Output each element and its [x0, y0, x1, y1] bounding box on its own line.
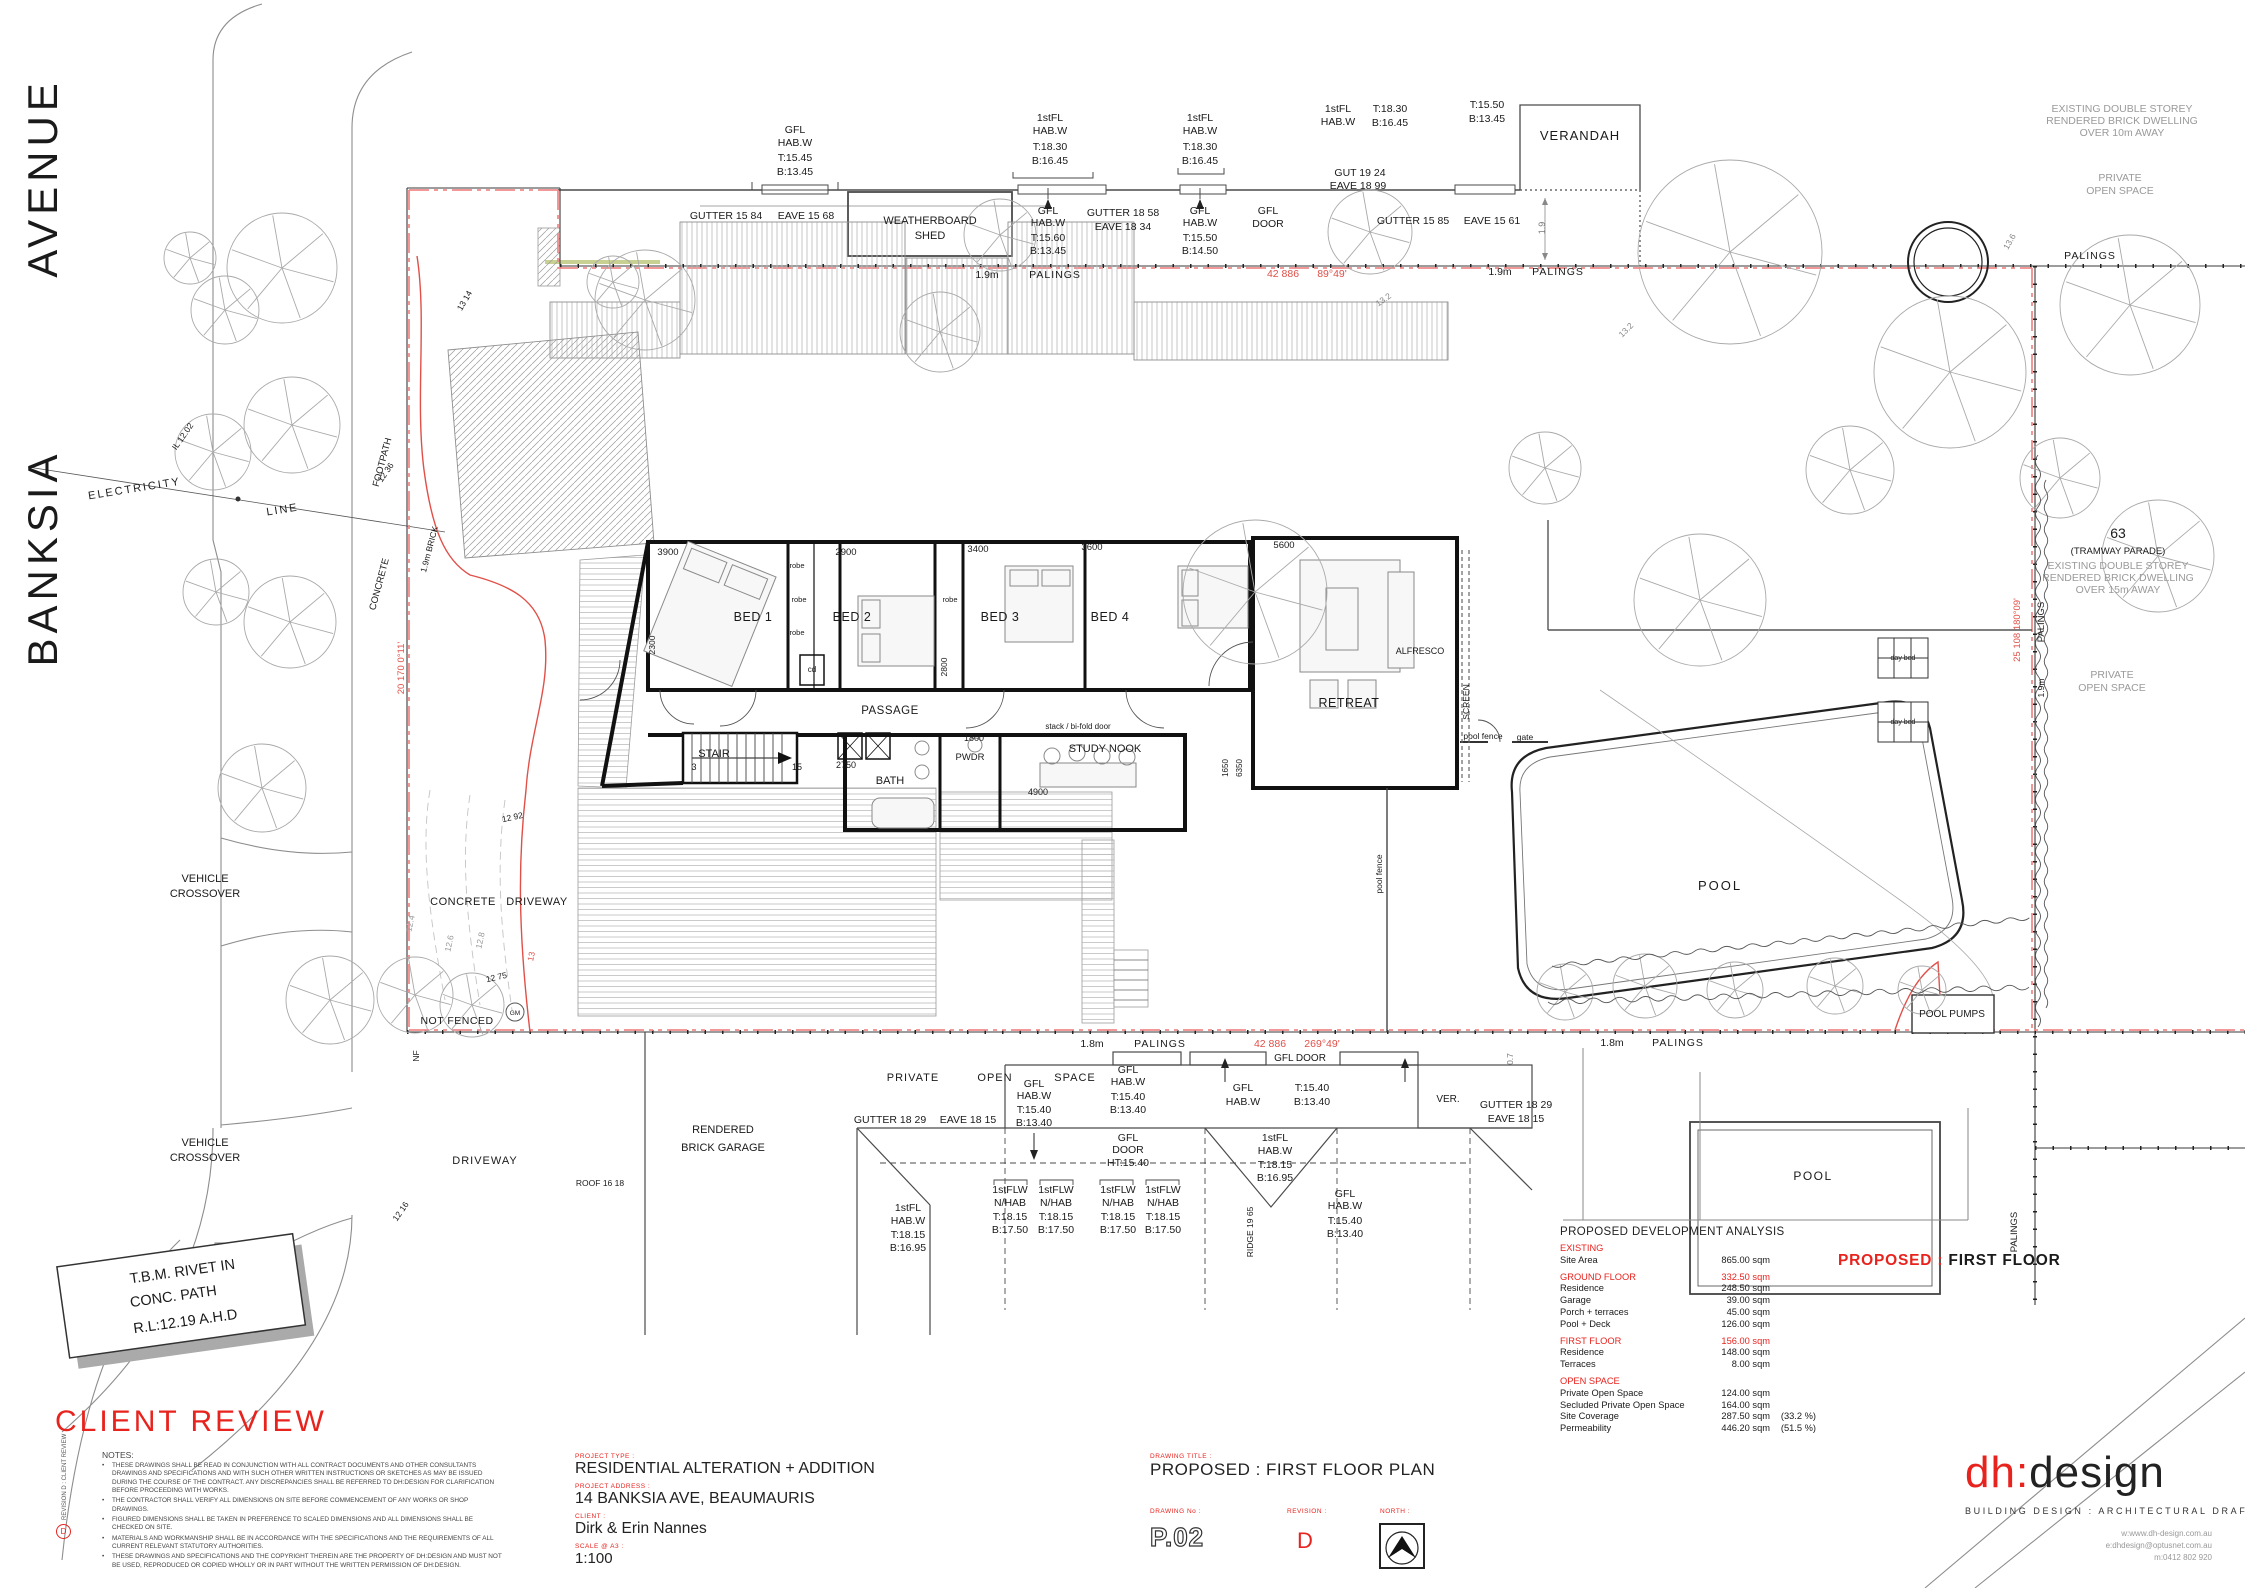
plan-label: OVER 15m AWAY: [2076, 584, 2161, 596]
analysis-row-value: 446.20 sqm: [1698, 1423, 1770, 1433]
tree-canopy: [1806, 426, 1894, 514]
tree-canopy: [218, 744, 306, 832]
plan-label: robe: [789, 561, 804, 570]
plan-label: 2750: [836, 760, 856, 770]
plan-label: 12.4: [403, 914, 416, 933]
plan-label: N/HAB: [1102, 1197, 1134, 1209]
analysis-row-value: 287.50 sqm: [1698, 1411, 1770, 1421]
plan-label: ROOF 16 18: [576, 1178, 624, 1188]
plan-label: B:17.50: [1100, 1224, 1136, 1236]
plan-label: T:15.40: [1111, 1091, 1146, 1103]
analysis-row-label: Site Area: [1560, 1255, 1698, 1265]
plan-label: 20 170 0°11': [396, 642, 407, 695]
plan-label: day bed: [1891, 655, 1916, 662]
plan-label: 13.2: [1616, 320, 1635, 339]
plan-label: day bed: [1891, 719, 1916, 726]
analysis-row-value: 865.00 sqm: [1698, 1255, 1770, 1265]
client-value: Dirk & Erin Nannes: [575, 1520, 875, 1538]
tree-canopy: [244, 576, 336, 668]
plan-label: GFL: [1118, 1064, 1139, 1076]
plan-label: T:15.45: [778, 152, 813, 164]
analysis-row: Site Area865.00 sqm: [1560, 1255, 1816, 1267]
tree-canopy: [164, 232, 216, 284]
plan-label: HAB.W: [778, 137, 813, 149]
analysis-row-label: Garage: [1560, 1295, 1698, 1305]
site-plan-drawing: AVENUEBANKSIAELECTRICITYLINEIL 12.0212 3…: [0, 0, 2245, 1588]
neighbour-pool-label: POOL: [1793, 1169, 1832, 1183]
plan-label: B:16.95: [1257, 1172, 1293, 1184]
tree-canopy: [1613, 954, 1677, 1018]
analysis-row: EXISTING: [1560, 1243, 1816, 1255]
pool-pumps-label: POOL PUMPS: [1919, 1009, 1985, 1020]
logo-brand-black: design: [2029, 1448, 2165, 1497]
plan-label: HAB.W: [1226, 1096, 1261, 1108]
plan-label: GFL: [1258, 205, 1279, 217]
plan-label: 1stFL: [1037, 112, 1063, 124]
analysis-row-label: Site Coverage: [1560, 1411, 1698, 1421]
analysis-row: Secluded Private Open Space164.00 sqm: [1560, 1400, 1816, 1412]
plan-label: robe: [942, 595, 957, 604]
plan-label: ALFRESCO: [1396, 646, 1445, 656]
plan-label: GUTTER 15 85: [1377, 215, 1450, 227]
tree-canopy: [440, 973, 504, 1037]
plan-label: pool fence: [1374, 854, 1384, 893]
plan-label: OVER 10m AWAY: [2080, 127, 2165, 139]
plan-label: GFL: [1024, 1078, 1045, 1090]
plan-label: FOOTPATH: [371, 436, 395, 488]
plan-label: 89°49': [1317, 268, 1347, 280]
room-retreat: RETREAT: [1319, 696, 1380, 710]
plan-label: SHED: [915, 230, 946, 242]
plan-label: 1.9m: [1488, 266, 1512, 278]
plan-label: T:18.30: [1183, 141, 1218, 153]
plan-label: pool fence: [1463, 731, 1502, 741]
plan-label: 1stFLW: [992, 1184, 1027, 1196]
plan-label: 12.8: [473, 931, 486, 950]
note-item-2: THE CONTRACTOR SHALL VERIFY ALL DIMENSIO…: [102, 1497, 502, 1514]
plan-label: 1.9: [1537, 222, 1547, 235]
scale-label: SCALE @ A3 :: [575, 1543, 875, 1550]
plan-label: GFL: [1118, 1132, 1139, 1144]
tree-canopy: [1328, 190, 1412, 274]
plan-label: GUT 19 24: [1334, 167, 1385, 179]
plan-label: EXISTING DOUBLE STOREY: [2051, 103, 2192, 115]
analysis-row-value: 124.00 sqm: [1698, 1388, 1770, 1398]
analysis-row: Residence148.00 sqm: [1560, 1347, 1816, 1359]
plan-label: EAVE 15 68: [778, 210, 835, 222]
note-item-1: THESE DRAWINGS SHALL BE READ IN CONJUNCT…: [102, 1462, 502, 1495]
plan-label: RENDERED BRICK DWELLING: [2046, 115, 2198, 127]
project-address-value: 14 BANKSIA AVE, BEAUMAURIS: [575, 1490, 875, 1508]
tree-canopy: [1638, 160, 1822, 344]
analysis-row-label: OPEN SPACE: [1560, 1376, 1698, 1386]
logo-contact-block: w:www.dh-design.com.au e:dhdesign@optusn…: [2000, 1528, 2212, 1564]
shrub-layer: [1548, 455, 2048, 1027]
analysis-row-label: Secluded Private Open Space: [1560, 1400, 1698, 1410]
drawing-no-value: P.02: [1150, 1522, 1204, 1553]
plan-label: 6350: [1235, 759, 1244, 777]
tree-canopy: [183, 559, 249, 625]
drawing-no-label: DRAWING No :: [1150, 1508, 1201, 1515]
analysis-row: Site Coverage287.50 sqm(33.2 %): [1560, 1411, 1816, 1423]
plan-label: robe: [789, 628, 804, 637]
drawing-title-block: DRAWING TITLE : PROPOSED : FIRST FLOOR P…: [1150, 1453, 1435, 1480]
analysis-row-label: Terraces: [1560, 1359, 1698, 1369]
analysis-row-value: 45.00 sqm: [1698, 1307, 1770, 1317]
plan-label: T:15.40: [1328, 1215, 1363, 1227]
plan-label: HAB.W: [1183, 217, 1218, 229]
room-bed1: BED 1: [734, 610, 773, 624]
plan-label: 1stFLW: [1145, 1184, 1180, 1196]
plan-label: VEHICLE: [181, 1137, 228, 1149]
furniture: [644, 541, 1414, 828]
plan-label: 0.7: [1505, 1053, 1515, 1065]
plan-label: 1stFL: [1262, 1132, 1288, 1144]
retreat-lounge: [1300, 560, 1414, 708]
plan-label: BRICK GARAGE: [681, 1142, 765, 1154]
bed2: [858, 596, 934, 666]
plan-label: DRIVEWAY: [452, 1155, 517, 1167]
plan-label: HAB.W: [1033, 125, 1068, 137]
plan-label: EAVE 18 34: [1095, 221, 1152, 233]
tree-canopy: [244, 377, 340, 473]
plan-label: 13: [525, 950, 537, 962]
analysis-row-label: Private Open Space: [1560, 1388, 1698, 1398]
neighbour-63-label: 63: [2110, 525, 2126, 541]
notes-heading: NOTES:: [102, 1450, 502, 1460]
plan-label: B:13.40: [1110, 1104, 1146, 1116]
analysis-row: Pool + Deck126.00 sqm: [1560, 1319, 1816, 1331]
plan-label: 1800: [964, 733, 984, 743]
plan-label: CROSSOVER: [170, 888, 240, 900]
revision-label: REVISION :: [1287, 1508, 1327, 1515]
plan-label: DRIVEWAY: [506, 896, 568, 908]
plan-label: 12 92: [501, 810, 524, 824]
analysis-title: PROPOSED DEVELOPMENT ANALYSIS: [1560, 1226, 1816, 1238]
tree-canopy: [1874, 296, 2026, 448]
plan-label: EAVE 18 15: [1488, 1113, 1545, 1125]
porch-roof-hatch: [448, 332, 654, 558]
analysis-row-label: Pool + Deck: [1560, 1319, 1698, 1329]
plan-label: 12 16: [390, 1199, 411, 1222]
plan-label: T:18.15: [1039, 1211, 1074, 1223]
plan-label: GFL DOOR: [1274, 1053, 1326, 1064]
analysis-row-value: 39.00 sqm: [1698, 1295, 1770, 1305]
plan-label: RENDERED: [692, 1124, 754, 1136]
analysis-row: Permeability446.20 sqm(51.5 %): [1560, 1423, 1816, 1435]
plan-label: 1650: [1221, 759, 1230, 777]
bed3: [1005, 566, 1073, 642]
tree-canopy: [286, 956, 374, 1044]
tree-canopy: [1634, 534, 1766, 666]
plan-label: 42 886: [1267, 268, 1299, 280]
plan-label: HAB.W: [1183, 125, 1218, 137]
analysis-row-percent: (33.2 %): [1770, 1411, 1816, 1421]
plan-label: PALINGS: [2009, 1212, 2020, 1252]
tree-canopy: [191, 276, 259, 344]
plan-label: DOOR: [1252, 218, 1284, 230]
plan-label: B:13.40: [1327, 1228, 1363, 1240]
roof-below-hatch: [550, 222, 1448, 360]
client-review-stamp: CLIENT REVIEW: [55, 1405, 327, 1439]
plan-label: B:16.45: [1182, 155, 1218, 167]
plan-label: HT:15.40: [1107, 1157, 1149, 1169]
analysis-row: OPEN SPACE: [1560, 1376, 1816, 1388]
plan-label: HAB.W: [1258, 1145, 1293, 1157]
plan-label: T:18.30: [1033, 141, 1068, 153]
plan-label: PALINGS: [2036, 602, 2047, 642]
room-bed3: BED 3: [981, 610, 1020, 624]
development-analysis-table: PROPOSED DEVELOPMENT ANALYSIS EXISTINGSi…: [1560, 1226, 1816, 1435]
logo-email: e:dhdesign@optusnet.com.au: [2000, 1540, 2212, 1552]
plan-label: T:18.30: [1373, 103, 1408, 115]
plan-label: GUTTER 18 29: [854, 1114, 927, 1126]
plan-label: B:13.45: [1030, 245, 1066, 257]
plan-label: GFL: [1335, 1188, 1356, 1200]
plan-label: T:18.15: [1101, 1211, 1136, 1223]
plan-label: 15: [792, 762, 802, 772]
revision-vertical-note: REVISION D : CLIENT REVIEW: [62, 1434, 68, 1520]
plan-label: 1.8m: [1600, 1037, 1624, 1049]
analysis-row-label: Residence: [1560, 1347, 1698, 1357]
plan-label: PALINGS: [1652, 1037, 1704, 1049]
plan-label: PALINGS: [1134, 1038, 1186, 1050]
plan-label: gate: [1517, 732, 1534, 742]
plan-label: (TRAMWAY PARADE): [2071, 546, 2166, 557]
analysis-row-value: 248.50 sqm: [1698, 1283, 1770, 1293]
analysis-row: Private Open Space124.00 sqm: [1560, 1388, 1816, 1400]
plan-label: EAVE 18 99: [1330, 180, 1387, 192]
plan-label: GM: [510, 1010, 520, 1017]
plan-label: GFL: [1038, 205, 1059, 217]
dhdesign-logo: dh:design: [1965, 1448, 2165, 1498]
plan-label: LINE: [266, 502, 300, 519]
plan-label: GFL: [1233, 1082, 1254, 1094]
plan-label: VEHICLE: [181, 873, 228, 885]
tree-canopy: [227, 213, 337, 323]
shrub-line: [2036, 455, 2041, 1027]
scale-value: 1:100: [575, 1550, 875, 1567]
plan-label: stack / bi-fold door: [1045, 722, 1111, 731]
plan-label: OPEN SPACE: [2086, 185, 2154, 197]
analysis-row-value: 332.50 sqm: [1698, 1272, 1770, 1282]
drawing-title-value: PROPOSED : FIRST FLOOR PLAN: [1150, 1460, 1435, 1480]
plan-label: B:13.45: [777, 166, 813, 178]
day-beds: [1878, 638, 1928, 742]
plan-label: N/HAB: [1040, 1197, 1072, 1209]
plan-label: 1.9m: [975, 269, 999, 281]
analysis-row: Residence248.50 sqm: [1560, 1283, 1816, 1295]
plan-label: B:13.45: [1469, 113, 1505, 125]
tree-canopy: [1807, 958, 1863, 1014]
plan-label: 13.6: [2001, 232, 2018, 252]
pool-label: POOL: [1698, 878, 1742, 893]
plan-label: EAVE 15 61: [1464, 215, 1521, 227]
project-address-label: PROJECT ADDRESS :: [575, 1483, 875, 1490]
north-arrow-icon: [1378, 1522, 1426, 1570]
plan-label: HAB.W: [1328, 1200, 1363, 1212]
plan-label: DOOR: [1112, 1144, 1144, 1156]
analysis-row-value: 126.00 sqm: [1698, 1319, 1770, 1329]
plan-label: 4900: [1028, 787, 1048, 797]
verandah-label: VERANDAH: [1540, 128, 1620, 143]
analysis-row: Terraces8.00 sqm: [1560, 1359, 1816, 1371]
plan-label: 1stFL: [895, 1202, 921, 1214]
analysis-row-percent: (51.5 %): [1770, 1423, 1816, 1433]
plan-label: 2300: [647, 635, 657, 654]
project-type-label: PROJECT TYPE :: [575, 1453, 875, 1460]
plan-label: 269°49': [1304, 1038, 1339, 1050]
analysis-row-value: 8.00 sqm: [1698, 1359, 1770, 1369]
plan-label: 1stFL: [1187, 112, 1213, 124]
analysis-row-label: Porch + terraces: [1560, 1307, 1698, 1317]
plan-label: T:18.15: [891, 1229, 926, 1241]
electricity-line-label: ELECTRICITY: [87, 476, 181, 502]
proposed-tag-black: FIRST FLOOR: [1943, 1252, 2060, 1269]
revision-circle-marker: D: [56, 1524, 71, 1539]
plan-label: PALINGS: [1532, 266, 1584, 278]
tree-canopy: [1537, 964, 1593, 1020]
plan-label: 25 108 180°09': [2012, 598, 2023, 662]
plan-label: 3600: [1081, 542, 1102, 553]
plan-label: OPEN: [977, 1072, 1012, 1084]
plan-label: EAVE 18 15: [940, 1114, 997, 1126]
plan-label: HAB.W: [1017, 1090, 1052, 1102]
plan-label: 42 886: [1254, 1038, 1286, 1050]
plan-label: B:17.50: [1145, 1224, 1181, 1236]
plan-label: GUTTER 18 29: [1480, 1099, 1553, 1111]
plan-label: B:13.40: [1016, 1117, 1052, 1129]
client-label: CLIENT :: [575, 1513, 875, 1520]
plan-label: T:18.15: [993, 1211, 1028, 1223]
plan-label: 3900: [657, 547, 678, 558]
plan-label: T:15.50: [1183, 232, 1218, 244]
plan-label: PALINGS: [1029, 269, 1081, 281]
plan-label: RIDGE 19 65: [1245, 1206, 1255, 1257]
plan-label: IL 12.02: [170, 421, 196, 452]
note-item-4: MATERIALS AND WORKMANSHIP SHALL BE IN AC…: [102, 1535, 502, 1552]
plan-label: NOT FENCED: [420, 1015, 493, 1027]
logo-tagline: BUILDING DESIGN : ARCHITECTURAL DRAFTING: [1965, 1506, 2245, 1516]
plan-label: 5600: [1273, 540, 1294, 551]
plan-label: 1stFLW: [1038, 1184, 1073, 1196]
plan-label: 3: [691, 762, 696, 772]
plan-label: GFL: [1190, 205, 1211, 217]
plan-label: 3400: [967, 544, 988, 555]
analysis-row-label: GROUND FLOOR: [1560, 1272, 1698, 1282]
plan-label: CONCRETE: [367, 557, 391, 611]
plan-label: VER.: [1436, 1094, 1459, 1105]
shed-label: WEATHERBOARD: [883, 215, 976, 227]
plan-label: CROSSOVER: [170, 1152, 240, 1164]
analysis-row-value: 148.00 sqm: [1698, 1347, 1770, 1357]
north-label: NORTH :: [1380, 1508, 1410, 1515]
drawing-title-label: DRAWING TITLE :: [1150, 1453, 1435, 1460]
room-study-nook: STUDY NOOK: [1069, 743, 1142, 755]
plan-label: 1.9m BRICK: [418, 525, 440, 574]
proposed-first-floor-tag: PROPOSED : FIRST FLOOR: [1838, 1252, 2061, 1270]
plan-label: RENDERED BRICK DWELLING: [2042, 572, 2194, 584]
plan-label: T:15.50: [1470, 99, 1505, 111]
plan-label: T:15.60: [1031, 232, 1066, 244]
street-banksia: BANKSIA: [19, 449, 66, 666]
room-bed2: BED 2: [833, 610, 872, 624]
plan-label: PALINGS: [2064, 250, 2116, 262]
plan-label: B:17.50: [992, 1224, 1028, 1236]
plan-label: 1stFL: [1325, 103, 1351, 115]
plan-label: 13 14: [455, 289, 474, 313]
room-pwdr: PWDR: [955, 752, 984, 763]
analysis-row-label: Residence: [1560, 1283, 1698, 1293]
logo-web: w:www.dh-design.com.au: [2000, 1528, 2212, 1540]
plan-label: HAB.W: [1031, 217, 1066, 229]
note-item-3: FIGURED DIMENSIONS SHALL BE TAKEN IN PRE…: [102, 1516, 502, 1533]
pool-outline: [1512, 702, 1964, 999]
plan-label: 1.9m: [2036, 679, 2046, 698]
plan-label: EXISTING DOUBLE STOREY: [2047, 560, 2188, 572]
plan-label: N/HAB: [994, 1197, 1026, 1209]
plan-label: T:15.40: [1017, 1104, 1052, 1116]
plan-label: HAB.W: [891, 1215, 926, 1227]
plan-label: B:16.45: [1032, 155, 1068, 167]
plan-label: B:17.50: [1038, 1224, 1074, 1236]
analysis-row: Porch + terraces45.00 sqm: [1560, 1307, 1816, 1319]
street-avenue: AVENUE: [19, 78, 66, 278]
pool-yard: [1387, 520, 2032, 1033]
plan-label: PRIVATE: [2098, 172, 2141, 184]
analysis-row-label: Permeability: [1560, 1423, 1698, 1433]
tree-canopy: [1509, 432, 1581, 504]
plan-label: T:18.15: [1258, 1159, 1293, 1171]
analysis-row: Garage39.00 sqm: [1560, 1295, 1816, 1307]
plan-label: T:15.40: [1295, 1082, 1330, 1094]
plan-label: GUTTER 18 58: [1087, 207, 1160, 219]
shrub-line: [1552, 918, 2029, 968]
analysis-row-value: 164.00 sqm: [1698, 1400, 1770, 1410]
plan-label: B:13.40: [1294, 1096, 1330, 1108]
floor-plan-sheet: { "sheet": { "stamp": "CLIENT REVIEW", "…: [0, 0, 2245, 1588]
analysis-row-value: 156.00 sqm: [1698, 1336, 1770, 1346]
notes-block: NOTES: THESE DRAWINGS SHALL BE READ IN C…: [102, 1450, 502, 1572]
plan-label: 12.6: [442, 934, 455, 953]
analysis-row-label: EXISTING: [1560, 1243, 1698, 1253]
analysis-leaders: [1563, 1048, 1968, 1220]
plan-label: HAB.W: [1321, 116, 1356, 128]
note-item-5: THESE DRAWINGS AND SPECIFICATIONS AND TH…: [102, 1553, 502, 1570]
plan-label: cd: [808, 665, 816, 674]
plan-label: 2900: [835, 547, 856, 558]
plan-label: 1.8m: [1080, 1038, 1104, 1050]
plan-label: GFL: [785, 124, 806, 136]
plan-label: B:16.45: [1372, 117, 1408, 129]
plan-label: OPEN SPACE: [2078, 682, 2146, 694]
logo-brand-red: dh:: [1965, 1448, 2029, 1497]
tree-canopy: [1707, 962, 1763, 1018]
room-passage: PASSAGE: [861, 705, 919, 717]
revision-value: D: [1297, 1528, 1313, 1554]
project-info-block: PROJECT TYPE : RESIDENTIAL ALTERATION + …: [575, 1453, 875, 1567]
plan-label: 2800: [939, 657, 949, 676]
plan-label: B:14.50: [1182, 245, 1218, 257]
plan-label: N/HAB: [1147, 1197, 1179, 1209]
plan-label: HAB.W: [1111, 1076, 1146, 1088]
water-tank: [1908, 222, 1988, 302]
plan-label: SCREEN: [1461, 684, 1471, 719]
plan-label: GUTTER 15 84: [690, 210, 763, 222]
plan-label: 12 75: [485, 970, 508, 984]
plan-label: 1stFLW: [1100, 1184, 1135, 1196]
plan-label: PRIVATE: [887, 1072, 939, 1084]
